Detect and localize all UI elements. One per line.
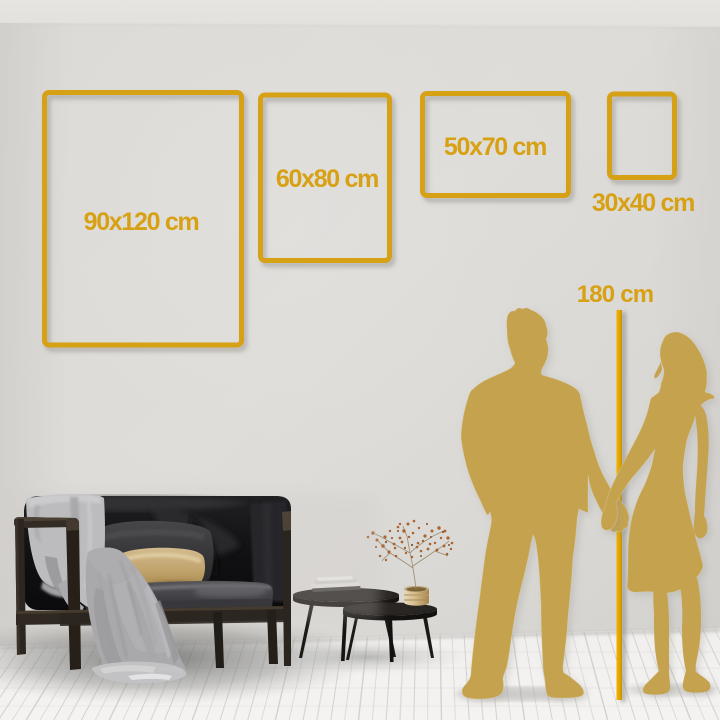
svg-text:60x80 cm: 60x80 cm [276, 165, 378, 193]
svg-text:90x120 cm: 90x120 cm [84, 208, 199, 236]
svg-text:30x40 cm: 30x40 cm [592, 189, 694, 217]
svg-text:50x70 cm: 50x70 cm [444, 133, 546, 161]
svg-text:180 cm: 180 cm [577, 281, 654, 308]
